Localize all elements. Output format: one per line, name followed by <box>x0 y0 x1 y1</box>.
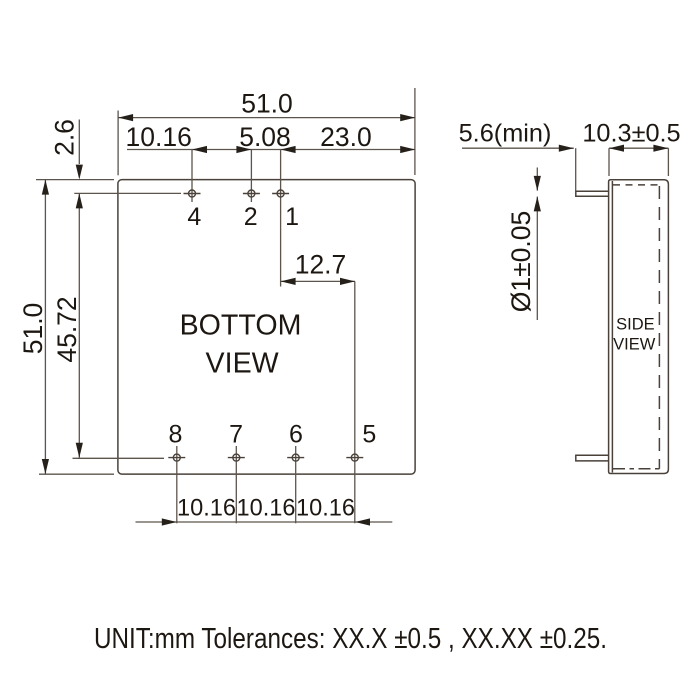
svg-text:VIEW: VIEW <box>206 347 279 379</box>
svg-text:5.6(min): 5.6(min) <box>459 120 552 148</box>
svg-text:2: 2 <box>244 203 258 231</box>
svg-text:UNIT:mm Tolerances: XX.X ±0.5: UNIT:mm Tolerances: XX.X ±0.5 , XX.XX ±0… <box>94 623 607 655</box>
svg-text:45.72: 45.72 <box>52 296 82 362</box>
svg-text:4: 4 <box>187 203 201 231</box>
svg-text:10.16: 10.16 <box>177 495 236 522</box>
svg-text:10.16: 10.16 <box>296 495 355 522</box>
svg-text:6: 6 <box>289 420 303 448</box>
svg-text:VIEW: VIEW <box>613 336 656 354</box>
svg-text:Ø1±0.05: Ø1±0.05 <box>506 211 536 312</box>
svg-text:7: 7 <box>229 420 243 448</box>
svg-text:BOTTOM: BOTTOM <box>180 309 302 341</box>
svg-text:10.16: 10.16 <box>126 122 192 152</box>
svg-text:10.16: 10.16 <box>237 495 296 522</box>
svg-text:1: 1 <box>285 203 299 231</box>
svg-text:SIDE: SIDE <box>616 315 655 333</box>
svg-text:2.6: 2.6 <box>50 119 80 156</box>
svg-text:5.08: 5.08 <box>239 122 291 152</box>
svg-text:5: 5 <box>362 420 376 448</box>
svg-text:51.0: 51.0 <box>241 89 293 119</box>
svg-text:8: 8 <box>168 420 182 448</box>
svg-text:12.7: 12.7 <box>295 250 347 280</box>
svg-text:23.0: 23.0 <box>320 122 372 152</box>
svg-text:10.3±0.5: 10.3±0.5 <box>582 120 680 148</box>
svg-text:51.0: 51.0 <box>18 303 48 355</box>
